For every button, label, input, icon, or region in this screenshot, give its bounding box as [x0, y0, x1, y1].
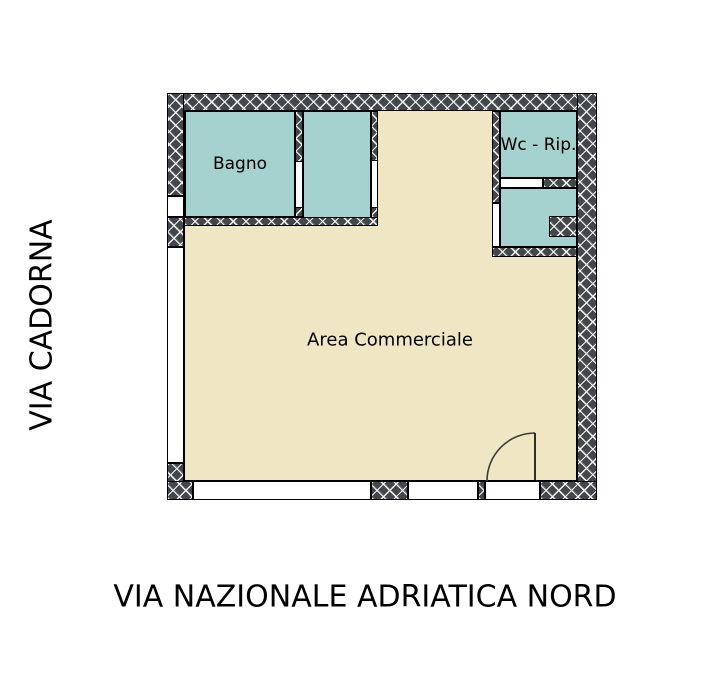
wall-wc-divider	[543, 178, 577, 188]
window-bottom-middle	[408, 481, 478, 500]
room-wc-rip: Wc - Rip.	[500, 111, 577, 178]
door-anti-bagno-partition	[371, 160, 378, 208]
door-wc-divider	[500, 178, 543, 188]
partition-wc-left	[492, 111, 500, 203]
room-wc-rip-label: Wc - Rip.	[501, 135, 577, 155]
wall-bagno-block-bottom	[184, 217, 378, 226]
wall-top	[167, 93, 597, 111]
room-bagno: Bagno	[185, 111, 295, 217]
wall-left-upper	[167, 93, 184, 196]
room-area-commerciale-label: Area Commerciale	[307, 330, 473, 351]
wall-bottom-left-corner	[167, 481, 193, 500]
wall-bottom-thin-pier	[478, 481, 485, 500]
room-anti-bagno	[303, 111, 371, 218]
wall-bottom-pier	[371, 481, 408, 500]
room-bagno-label: Bagno	[213, 154, 267, 174]
wall-right	[577, 93, 597, 500]
wall-bottom-right-corner	[540, 481, 597, 500]
door-bagno-partition	[295, 161, 303, 208]
wall-storage-stub	[549, 216, 577, 237]
street-label-via-nazionale-adriatica-nord: VIA NAZIONALE ADRIATICA NORD	[113, 580, 616, 615]
entrance-door-opening	[485, 481, 540, 500]
door-wc-block	[492, 203, 500, 247]
floor-plan: Bagno Wc - Rip. Area Commerciale	[167, 93, 597, 500]
window-bottom-left	[193, 481, 371, 500]
street-label-via-cadorna: VIA CADORNA	[25, 219, 60, 430]
wall-wc-block-bottom	[492, 247, 577, 257]
wall-left-pier	[167, 217, 184, 247]
window-left-upper	[167, 196, 184, 217]
window-left-lower	[167, 247, 184, 463]
